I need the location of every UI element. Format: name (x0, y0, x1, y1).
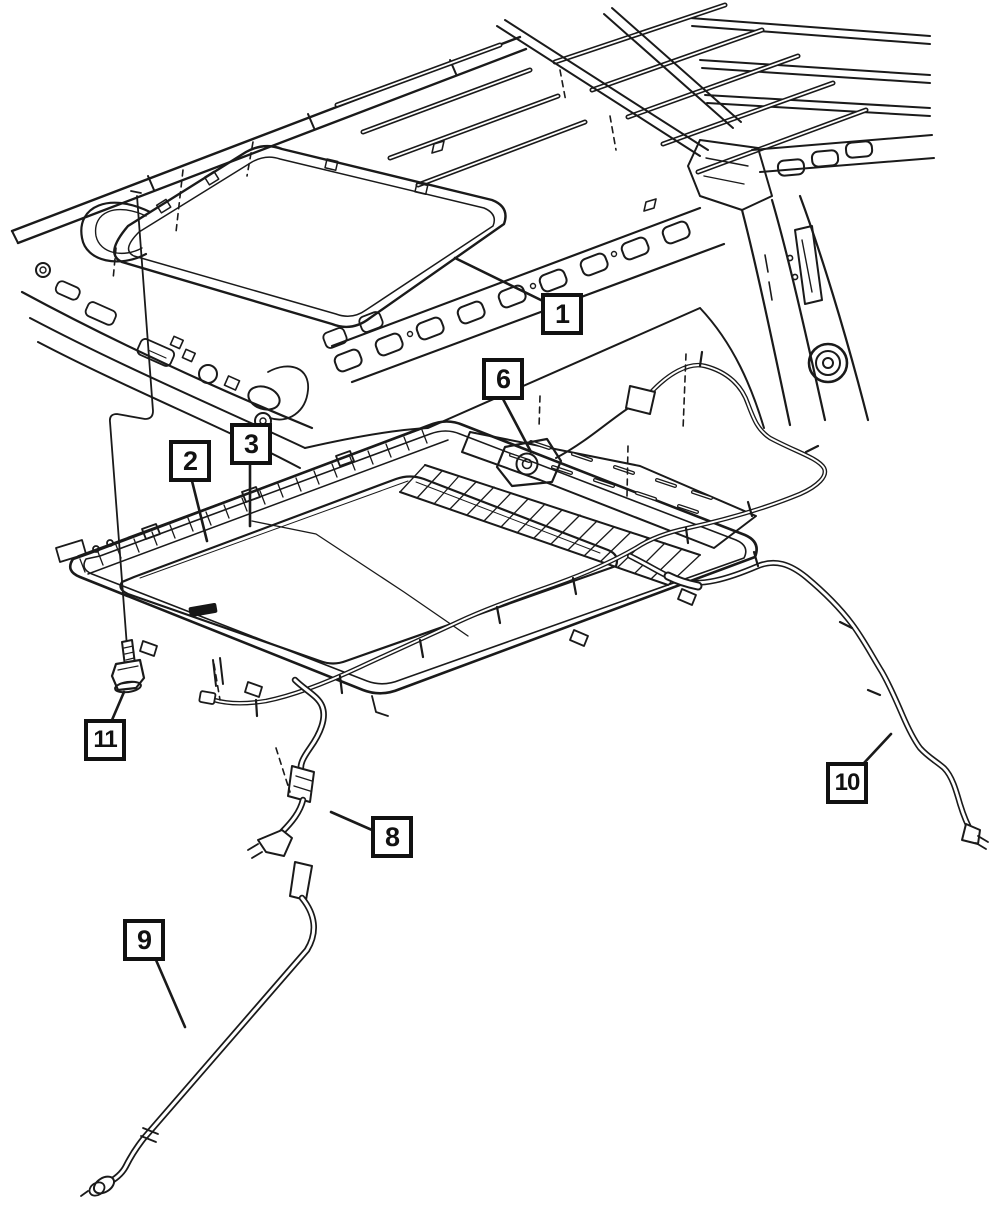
callout-2-label: 2 (183, 448, 197, 475)
front-header (22, 263, 384, 468)
callout-3-label: 3 (244, 431, 258, 458)
callout-6[interactable]: 6 (482, 358, 524, 400)
callout-9-label: 9 (137, 927, 151, 954)
mounting-bolt (112, 640, 144, 694)
callout-6-label: 6 (496, 366, 510, 393)
leader-line-9 (156, 960, 185, 1027)
callout-10-label: 10 (835, 771, 860, 795)
callout-2[interactable]: 2 (169, 440, 211, 482)
callout-11-label: 11 (93, 728, 116, 752)
leader-line-8 (331, 812, 372, 830)
leader-line-10 (864, 734, 891, 763)
callout-11[interactable]: 11 (84, 719, 126, 761)
callout-8-label: 8 (385, 824, 399, 851)
parts-diagram-page: 1 2 3 6 8 9 10 11 (0, 0, 1000, 1214)
b-pillar (742, 196, 868, 425)
callout-8[interactable]: 8 (371, 816, 413, 858)
front-drain-tube-lower (81, 862, 314, 1198)
leader-line-1 (455, 258, 547, 303)
callout-3[interactable]: 3 (230, 423, 272, 465)
rear-drain-tube (630, 552, 988, 849)
callout-10[interactable]: 10 (826, 762, 868, 804)
callout-9[interactable]: 9 (123, 919, 165, 961)
frame-tabs (56, 451, 696, 716)
callout-1[interactable]: 1 (541, 293, 583, 335)
grommet (809, 344, 847, 382)
callout-1-label: 1 (555, 301, 569, 328)
leader-line-11 (112, 692, 124, 720)
sunroof-frame-art (56, 402, 757, 716)
front-drain-tube-upper (248, 680, 324, 858)
diagram-artwork (0, 0, 1000, 1214)
roof-cross-bows (497, 8, 772, 210)
roof-side-rail (305, 208, 764, 448)
